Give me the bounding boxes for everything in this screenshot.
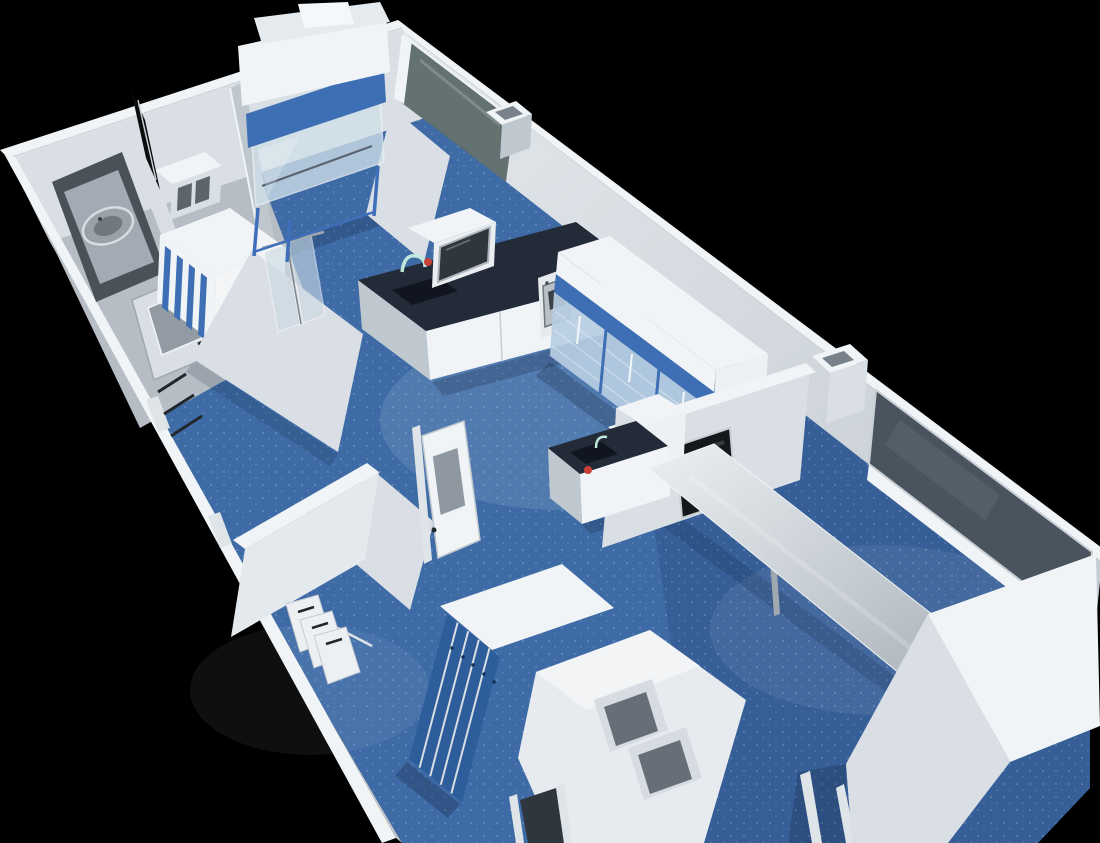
locker-handle-2 — [461, 655, 465, 659]
bench-red-valve — [424, 258, 432, 266]
autoclave-latch — [98, 217, 102, 221]
locker-handle-1 — [450, 646, 454, 650]
cabinet-exhaust — [298, 2, 354, 28]
open-door-handle — [432, 528, 437, 533]
oven-dial — [545, 281, 549, 285]
render-stage — [0, 0, 1100, 843]
locker-handle-3 — [471, 663, 475, 667]
lab-3d-render — [0, 0, 1100, 843]
locker-handle-4 — [482, 672, 486, 676]
prep-red-valve — [584, 466, 592, 474]
locker-handle-5 — [492, 680, 496, 684]
